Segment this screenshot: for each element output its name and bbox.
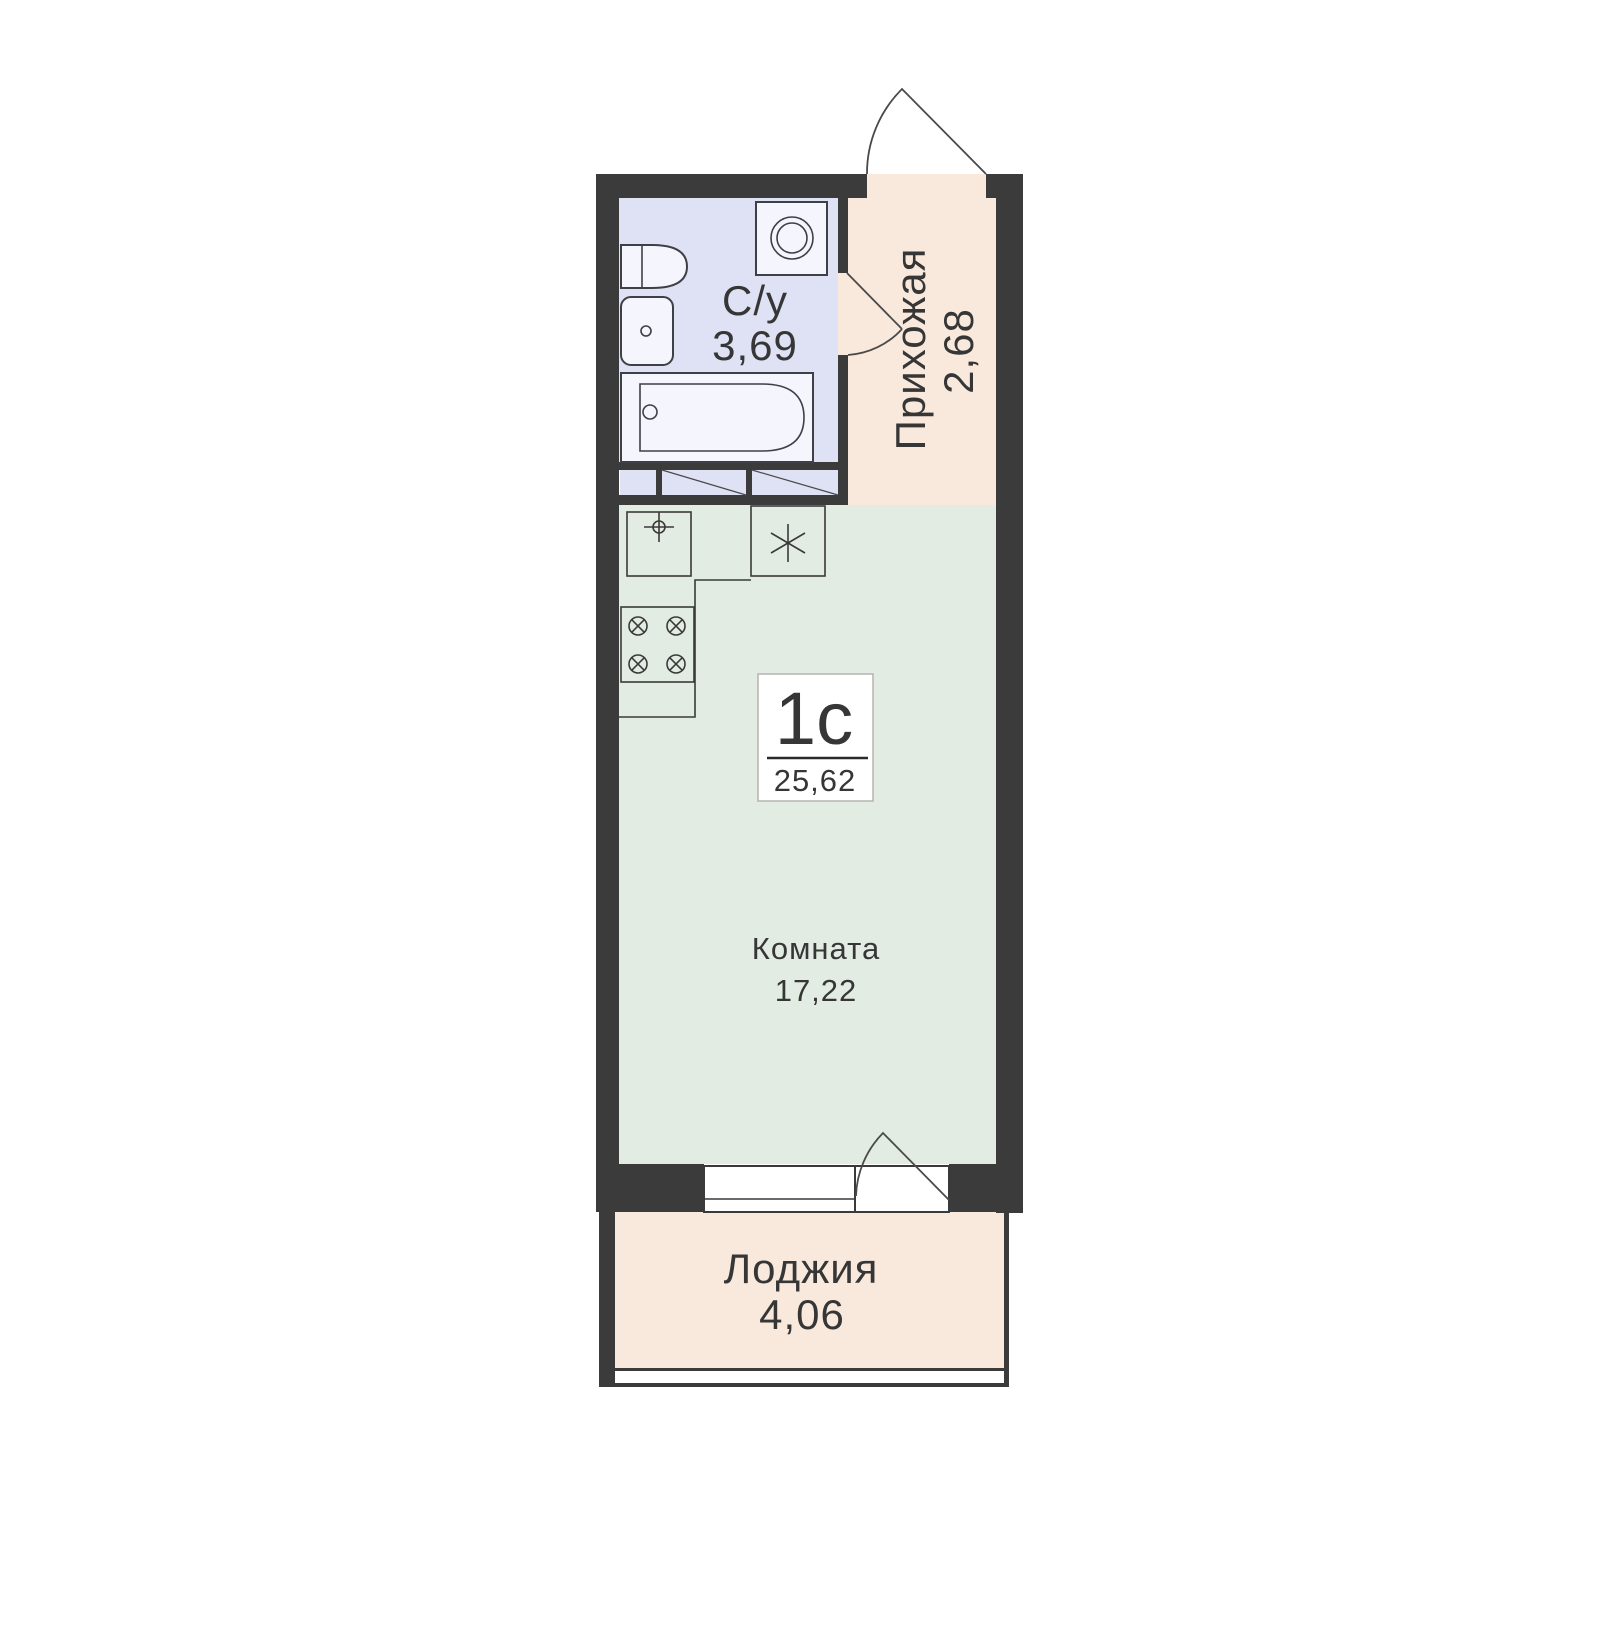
room-floor <box>619 505 996 1164</box>
floor-plan: 1с 25,62 С/у 3,69 Прихожая 2,68 Комната … <box>0 0 1620 1620</box>
loggia-label: Лоджия <box>724 1245 879 1292</box>
hallway-label: Прихожая <box>887 248 934 451</box>
wall-top-left <box>596 174 867 198</box>
bathtub-icon <box>621 373 813 462</box>
wall-closet-sep-1 <box>656 470 662 495</box>
window <box>704 1166 855 1212</box>
unit-label-box: 1с 25,62 <box>758 674 873 801</box>
loggia-area-label: 4,06 <box>759 1291 845 1338</box>
unit-type-label: 1с <box>775 677 853 760</box>
wall-bottom-left <box>596 1164 704 1212</box>
wall-closet-sep-2 <box>746 470 752 495</box>
loggia-glazing <box>599 1368 1009 1387</box>
wall-closet-top <box>619 462 848 470</box>
hallway-bathroom-door-floor <box>838 273 848 355</box>
balcony-door-opening <box>855 1166 949 1212</box>
wall-bathroom-partition-lower <box>838 355 848 505</box>
wall-closet-bottom <box>596 495 848 505</box>
toilet-icon <box>621 245 687 288</box>
unit-area-label: 25,62 <box>774 763 857 798</box>
entrance-door-arc <box>867 89 986 174</box>
room-label: Комната <box>752 931 880 966</box>
bathroom-label: С/у <box>722 277 788 324</box>
wall-right <box>996 174 1023 1213</box>
hallway-entry-opening-floor <box>867 174 986 198</box>
wall-loggia-left <box>599 1212 615 1387</box>
wall-bottom-right <box>949 1164 1023 1212</box>
room-area-label: 17,22 <box>775 973 858 1008</box>
sink-icon <box>621 297 673 365</box>
washing-machine-icon <box>756 202 827 275</box>
hallway-area-label: 2,68 <box>935 308 982 394</box>
wall-loggia-right <box>1004 1212 1009 1387</box>
bathroom-area-label: 3,69 <box>712 322 798 369</box>
wardrobe-row <box>620 470 838 495</box>
wall-bathroom-partition-upper <box>838 198 848 273</box>
wardrobe-1 <box>620 470 656 495</box>
wall-left <box>596 174 619 1212</box>
